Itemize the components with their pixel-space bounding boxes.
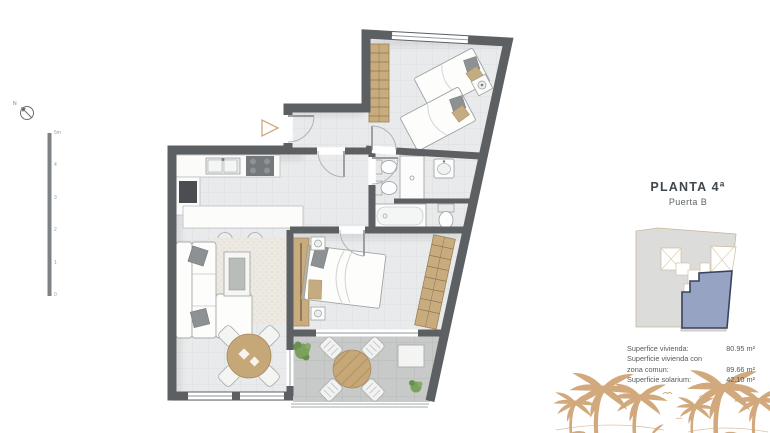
scale-label-0: 0 [54, 292, 57, 298]
ac-unit [398, 345, 424, 367]
area-label: Superficie vivienda con [627, 354, 702, 364]
area-row: Superficie vivienda con [627, 354, 755, 364]
scale-label-1: 1 [54, 260, 57, 266]
page-title: PLANTA 4ª [608, 181, 768, 194]
area-label: Superfice vivienda: [627, 344, 689, 354]
wardrobe [369, 44, 389, 122]
area-table: Superfice vivienda: 80.95 m² Superficie … [627, 344, 755, 386]
toilet [438, 204, 454, 229]
scale-label-5m: 5m [54, 130, 61, 136]
key-plan [636, 228, 736, 331]
scale-label-3: 3 [54, 195, 57, 201]
bathtub [374, 204, 426, 228]
area-value: 42.10 m² [726, 375, 755, 385]
area-row: Superficie solarium: 42.10 m² [627, 375, 755, 385]
plan-title-block: PLANTA 4ª Puerta B [608, 181, 768, 207]
scale-label-4: 4 [54, 162, 57, 168]
area-value: 80.95 m² [726, 344, 755, 354]
double-bed [301, 244, 386, 308]
cooktop [246, 156, 274, 176]
terrace-railing [291, 404, 429, 407]
coffee-table [224, 252, 250, 296]
area-row: Superfice vivienda: 80.95 m² [627, 344, 755, 354]
floor-plan [172, 34, 508, 407]
kitchen-peninsula [183, 206, 303, 228]
compass-icon [21, 107, 34, 120]
scale-label-2: 2 [54, 227, 57, 233]
shower [400, 156, 424, 200]
area-label: Superficie solarium: [627, 375, 691, 385]
washbasin [434, 159, 454, 178]
north-label: N [13, 101, 17, 107]
floor-plan-page: N 5m 4 3 2 1 0 PLANTA 4ª Puerta B Superf… [0, 0, 770, 433]
area-row: zona comun: 89.66 m² [627, 365, 755, 375]
scale-bar [48, 133, 52, 296]
page-subtitle: Puerta B [608, 197, 768, 207]
area-value: 89.66 m² [726, 365, 755, 375]
area-label: zona comun: [627, 365, 669, 375]
entrance-marker-icon [262, 120, 278, 136]
kitchen-sink [206, 158, 240, 174]
